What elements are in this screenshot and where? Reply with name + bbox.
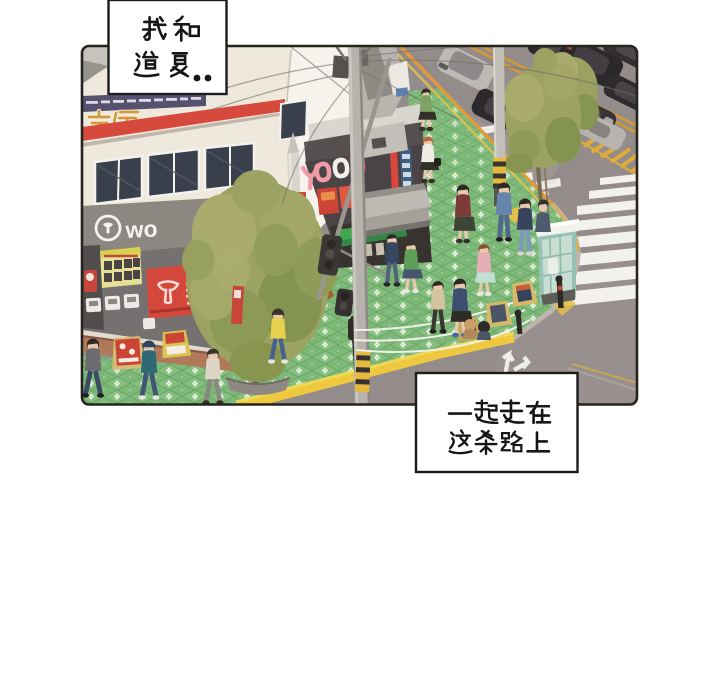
svg-text:wo: wo [124, 215, 158, 243]
